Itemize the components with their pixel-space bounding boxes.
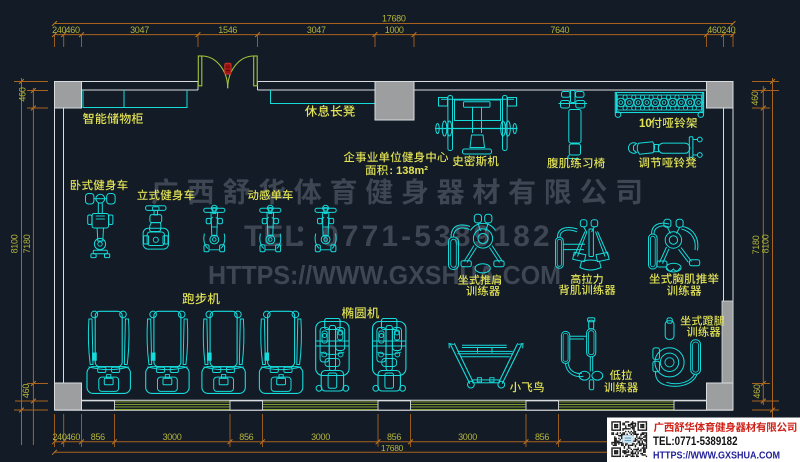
svg-text:7180: 7180 <box>22 234 32 253</box>
svg-text:460: 460 <box>752 384 762 398</box>
svg-text:856: 856 <box>387 432 401 442</box>
svg-text:17680: 17680 <box>381 443 404 453</box>
svg-text:460: 460 <box>17 87 27 101</box>
svg-text:460: 460 <box>21 384 31 398</box>
svg-text:1546: 1546 <box>218 25 237 35</box>
svg-text:HTTPS://WWW.GXSHUA.COM: HTTPS://WWW.GXSHUA.COM <box>653 450 780 462</box>
svg-text:7640: 7640 <box>550 25 569 35</box>
svg-text:856: 856 <box>239 432 253 442</box>
svg-text:7180: 7180 <box>751 235 761 254</box>
svg-text:460: 460 <box>66 432 80 442</box>
svg-text:17680: 17680 <box>382 13 406 23</box>
svg-text:856: 856 <box>535 432 549 442</box>
svg-text:TEL:0771-5389182: TEL:0771-5389182 <box>653 436 738 448</box>
svg-text:3047: 3047 <box>130 25 149 35</box>
svg-text:: 138m²: : 138m² <box>389 165 428 177</box>
svg-text:8100: 8100 <box>10 234 20 253</box>
svg-text:460: 460 <box>750 91 760 105</box>
svg-text:10: 10 <box>639 118 652 130</box>
svg-text:856: 856 <box>91 432 105 442</box>
svg-text:240: 240 <box>721 25 735 35</box>
svg-text:3000: 3000 <box>311 432 330 442</box>
svg-text:3000: 3000 <box>163 432 182 442</box>
svg-text:240: 240 <box>52 25 66 35</box>
svg-text:HTTPS://WWW.GXSHUA.COM: HTTPS://WWW.GXSHUA.COM <box>208 260 561 290</box>
svg-text:460: 460 <box>66 25 80 35</box>
svg-text:460: 460 <box>707 25 721 35</box>
svg-text:3000: 3000 <box>458 432 477 442</box>
svg-text:0771-5389182: 0771-5389182 <box>322 220 553 253</box>
svg-text:1000: 1000 <box>385 25 404 35</box>
svg-text:8100: 8100 <box>760 234 770 253</box>
svg-text:240: 240 <box>52 432 66 442</box>
svg-text:3047: 3047 <box>307 25 326 35</box>
